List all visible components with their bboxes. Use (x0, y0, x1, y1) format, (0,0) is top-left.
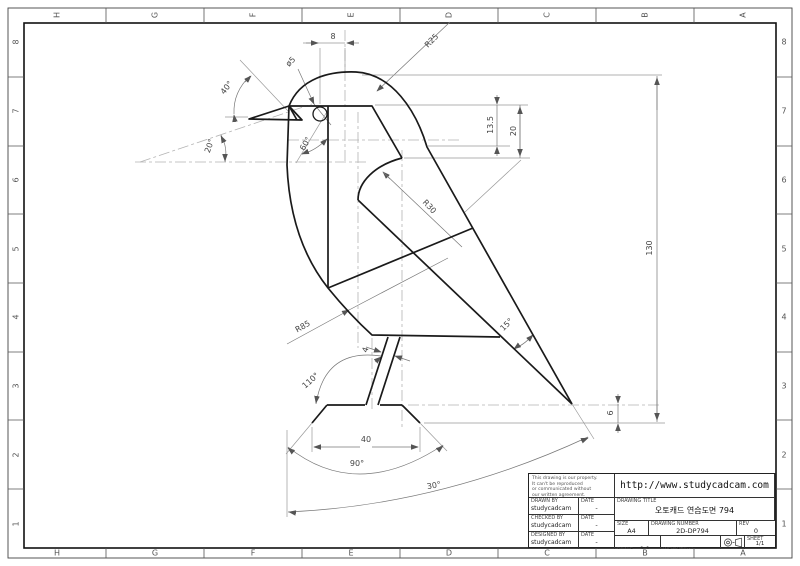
scale-value: 1:1 (638, 546, 650, 549)
date-value: - (579, 522, 614, 530)
eye-circle (313, 107, 327, 121)
drawn-by-cell: DRAWN BY studycadcam (529, 498, 579, 515)
zone-label: 8 (781, 38, 786, 47)
checked-by-value: studycadcam (529, 522, 578, 529)
head-and-back (289, 72, 572, 404)
zone-label: 7 (12, 108, 21, 113)
zone-label: 8 (12, 39, 21, 44)
zone-label: E (347, 12, 356, 17)
chest-belly-r85 (287, 106, 500, 337)
rev-value: 0 (737, 528, 775, 536)
zone-label: 2 (781, 451, 786, 460)
dim-base-width-40: 40 (361, 436, 371, 444)
website-cell: http://www.studycadcam.com (615, 474, 775, 498)
zone-label: 4 (12, 314, 21, 319)
weight-cell: WEIGHT(kg) - (661, 536, 721, 549)
zone-label: 6 (12, 177, 21, 182)
zone-label: 6 (781, 176, 786, 185)
zone-label: 5 (781, 245, 786, 254)
zone-label: G (151, 12, 160, 18)
shoulder-line (328, 228, 473, 288)
zone-label: C (544, 549, 550, 558)
date-value: - (579, 505, 614, 513)
rev-cell: REV 0 (737, 521, 775, 536)
designed-date-cell: DATE - (579, 532, 615, 549)
drawing-title-value: 오토캐드 연습도면 794 (615, 505, 774, 516)
beak (249, 106, 302, 120)
sheet-cell: SHEET 1/1 (745, 536, 775, 549)
legs (366, 337, 400, 405)
wing-notch-arc-r30 (358, 158, 402, 200)
zone-label: 2 (12, 452, 21, 457)
dim-height-20: 20 (510, 126, 518, 136)
dim-height-6: 6 (607, 410, 615, 415)
zone-label: A (739, 12, 748, 17)
weight-value: - (698, 546, 702, 549)
drawn-by-value: studycadcam (529, 505, 578, 512)
size-value: A4 (615, 528, 648, 536)
zone-label: D (446, 549, 452, 558)
designed-by-value: studycadcam (529, 539, 578, 546)
zone-label: F (251, 549, 256, 558)
zone-label: H (53, 12, 62, 18)
title-block: This drawing is our property. It can't b… (528, 473, 776, 548)
projection-symbol-cell (721, 536, 745, 549)
zone-label: 1 (781, 520, 786, 529)
dim-height-130: 130 (646, 240, 654, 255)
drawing-number-cell: DRAWING NUMBER 2D-DP794 (649, 521, 737, 536)
scale-label: SCALE (615, 547, 633, 549)
zone-label: 3 (781, 382, 786, 391)
zone-label: C (543, 12, 552, 18)
dimension-lines (221, 22, 665, 517)
zone-label: 5 (12, 246, 21, 251)
weight-label: WEIGHT(kg) (661, 547, 693, 549)
dim-angle-90: 90° (350, 460, 364, 468)
property-note-cell: This drawing is our property. It can't b… (529, 474, 615, 498)
zone-label: A (740, 549, 745, 558)
website-url: http://www.studycadcam.com (615, 474, 774, 497)
designed-by-cell: DESIGNED BY studycadcam (529, 532, 579, 549)
checked-date-cell: DATE - (579, 515, 615, 532)
checked-by-cell: CHECKED BY studycadcam (529, 515, 579, 532)
zone-label: 4 (781, 313, 786, 322)
zone-label: E (348, 549, 353, 558)
dim-height-13-5: 13.5 (487, 116, 495, 134)
zone-label: B (642, 549, 648, 558)
bird-outline (249, 72, 572, 423)
zone-label: 3 (12, 383, 21, 388)
dim-width-8: 8 (330, 33, 335, 41)
zone-label: B (641, 12, 650, 18)
zone-label: G (152, 549, 158, 558)
drawing-sheet: H G F E D C B A H G F E D C B A 8 7 6 5 … (0, 0, 800, 566)
date-value: - (579, 539, 614, 547)
drawing-title-cell: DRAWING TITLE 오토캐드 연습도면 794 (615, 498, 775, 521)
zone-label: F (249, 13, 258, 18)
centerlines (135, 30, 662, 428)
zone-label: 1 (12, 521, 21, 526)
third-angle-projection-icon (721, 536, 745, 549)
zone-label: H (54, 549, 60, 558)
zone-label: D (445, 12, 454, 18)
zone-label: 7 (781, 107, 786, 116)
drawing-number-value: 2D-DP794 (649, 528, 736, 536)
base-stand (312, 405, 420, 423)
scale-cell: SCALE 1:1 (615, 536, 661, 549)
size-cell: SIZE A4 (615, 521, 649, 536)
drawn-date-cell: DATE - (579, 498, 615, 515)
